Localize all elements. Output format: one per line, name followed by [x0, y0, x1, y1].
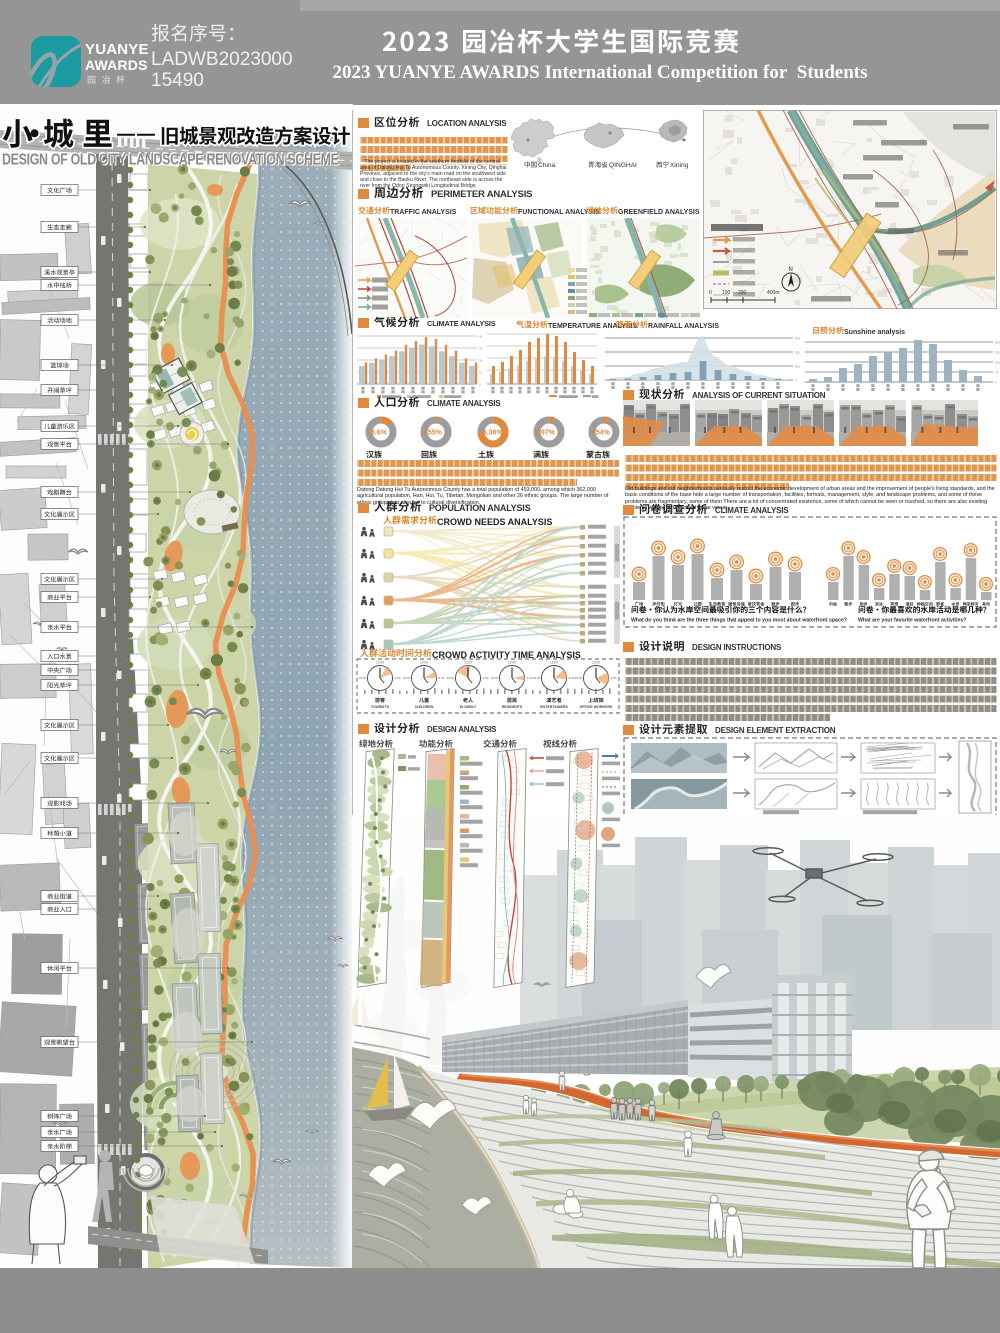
svg-text:CHILDREN: CHILDREN: [415, 705, 434, 709]
svg-text:N: N: [789, 267, 793, 273]
svg-text:12:00: 12:00: [550, 661, 558, 665]
svg-text:12:00: 12:00: [508, 661, 516, 665]
svg-text:300: 300: [795, 337, 800, 341]
svg-text:6:00: 6:00: [439, 676, 445, 680]
svg-text:400m: 400m: [767, 290, 780, 296]
svg-text:30: 30: [479, 347, 483, 351]
svg-text:18:00: 18:00: [533, 676, 541, 680]
svg-text:225: 225: [995, 351, 1000, 355]
svg-text:200: 200: [738, 290, 747, 296]
svg-text:ENTERTAINERS: ENTERTAINERS: [540, 705, 568, 709]
svg-text:20: 20: [479, 359, 483, 363]
svg-text:12:00: 12:00: [420, 661, 428, 665]
svg-text:0: 0: [995, 381, 997, 385]
svg-text:26.36%: 26.36%: [479, 430, 504, 437]
svg-text:TOURISTS: TOURISTS: [371, 705, 390, 709]
svg-text:100: 100: [795, 365, 800, 369]
svg-text:ELDERLY: ELDERLY: [460, 705, 477, 709]
svg-text:4.54%: 4.54%: [590, 430, 611, 437]
svg-text:18:00: 18:00: [403, 676, 411, 680]
svg-text:1.55%: 1.55%: [422, 430, 443, 437]
svg-text:0: 0: [709, 290, 712, 296]
svg-text:Xining: Xining: [670, 162, 689, 169]
svg-text:12:00: 12:00: [464, 661, 472, 665]
svg-text:55.6%: 55.6%: [367, 430, 388, 437]
svg-text:200: 200: [795, 351, 800, 355]
svg-text:18:00: 18:00: [575, 676, 583, 680]
svg-text:6:00: 6:00: [483, 676, 489, 680]
svg-text:China: China: [538, 162, 556, 169]
svg-text:100: 100: [722, 290, 731, 296]
svg-text:0: 0: [795, 379, 797, 383]
svg-text:150: 150: [995, 361, 1000, 365]
svg-text:12:00: 12:00: [376, 661, 384, 665]
svg-text:What do you think are the thre: What do you think are the three things t…: [631, 618, 847, 624]
svg-text:40: 40: [479, 335, 483, 339]
svg-text:6:00: 6:00: [395, 676, 401, 680]
svg-text:75: 75: [995, 371, 999, 375]
svg-text:12:00: 12:00: [592, 661, 600, 665]
svg-text:QINGHAI: QINGHAI: [609, 162, 637, 169]
svg-text:What are your favorite waterfr: What are your favorite waterfront activi…: [858, 618, 966, 624]
svg-text:18:00: 18:00: [491, 676, 499, 680]
svg-text:3.97%: 3.97%: [535, 430, 556, 437]
svg-text:RESIDENTS: RESIDENTS: [502, 705, 523, 709]
svg-text:10: 10: [479, 371, 483, 375]
svg-text:6:00: 6:00: [611, 676, 617, 680]
svg-text:300: 300: [995, 341, 1000, 345]
svg-text:18:00: 18:00: [359, 676, 367, 680]
svg-text:18:00: 18:00: [447, 676, 455, 680]
svg-text:OFFICE WORKERS: OFFICE WORKERS: [580, 705, 614, 709]
svg-text:0: 0: [479, 383, 481, 387]
